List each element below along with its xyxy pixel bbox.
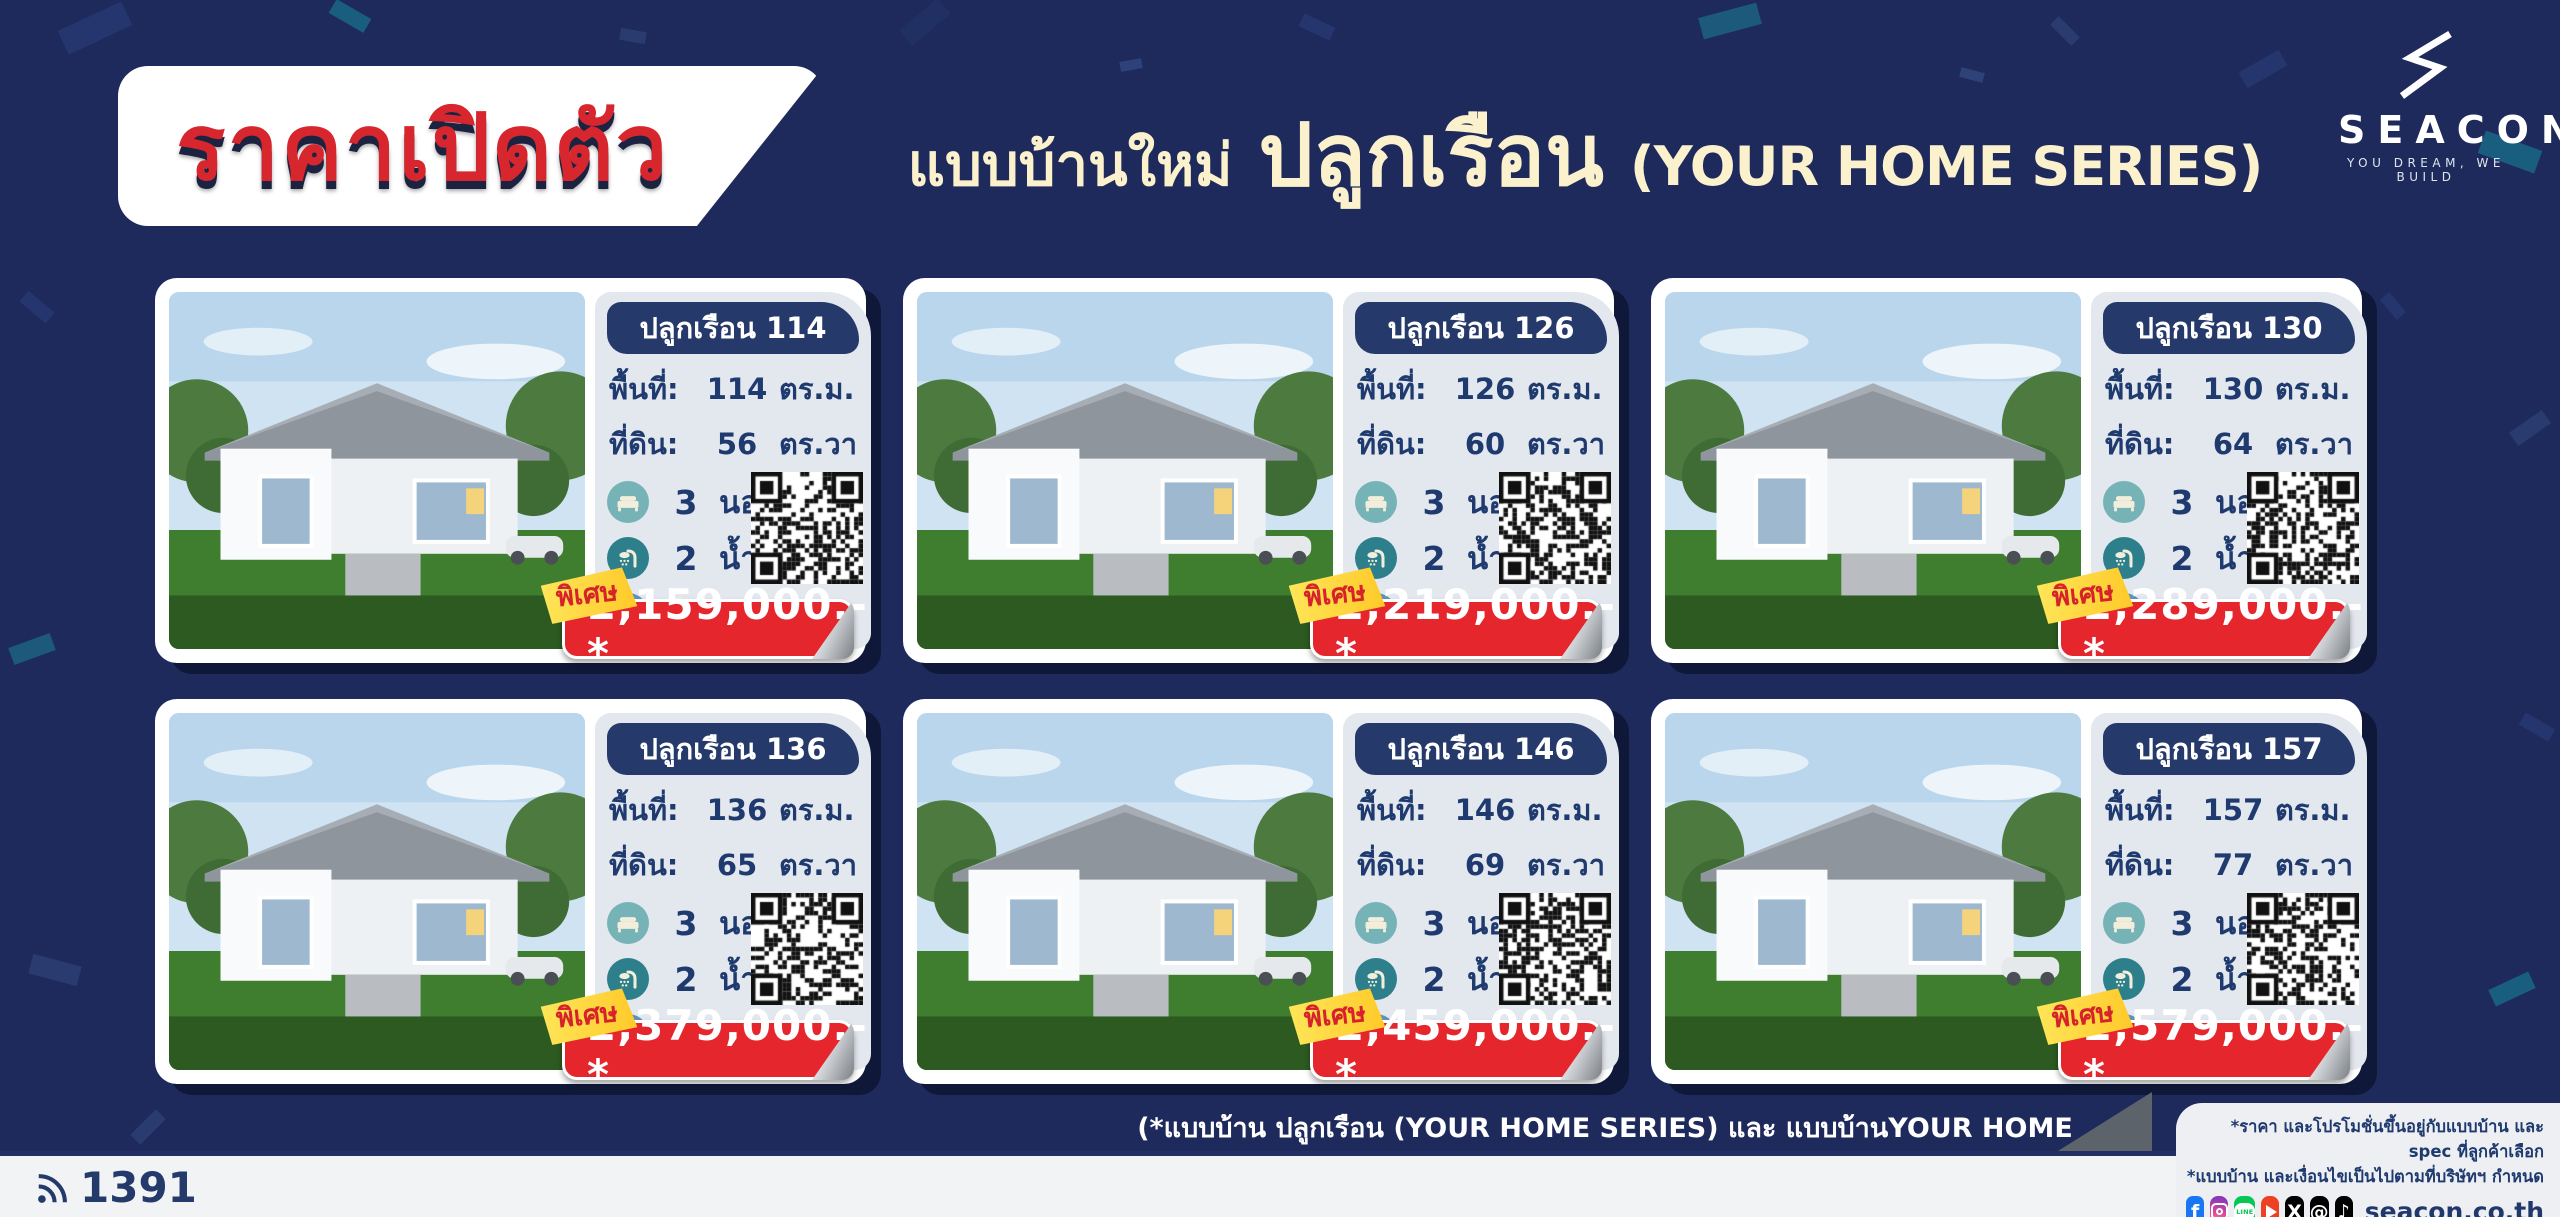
house-model-name: ปลูกเรือน 136 [639, 726, 826, 772]
hotline: 1391 [34, 1163, 197, 1212]
land-value: 60 [1453, 427, 1517, 461]
confetti-decoration [2239, 50, 2288, 89]
bedrooms-count: 3 [1413, 483, 1455, 522]
price-ribbon: พิเศษ ✦ 2,219,000.-* [1310, 599, 1602, 659]
brand-tagline: YOU DREAM, WE BUILD [2326, 156, 2526, 184]
x-icon[interactable]: X [2285, 1196, 2303, 1217]
house-model-badge: ปลูกเรือน 146 [1355, 723, 1607, 775]
area-row: พื้นที่: 157 ตร.ม. [2101, 787, 2357, 833]
page-title: แบบบ้านใหม่ ปลูกเรือน (YOUR HOME SERIES) [840, 86, 2330, 226]
confetti-decoration [1299, 13, 1336, 40]
area-label: พื้นที่: [1357, 787, 1443, 833]
house-model-badge: ปลูกเรือน 114 [607, 302, 859, 354]
promo-poster: ราคาเปิดตัว แบบบ้านใหม่ ปลูกเรือน (YOUR … [0, 0, 2560, 1217]
facebook-icon[interactable]: f [2186, 1196, 2204, 1217]
house-card: ปลูกเรือน 114 พื้นที่: 114 ตร.ม. ที่ดิน:… [155, 278, 866, 663]
area-value: 126 [1453, 372, 1517, 406]
land-value: 56 [705, 427, 769, 461]
house-card: ปลูกเรือน 130 พื้นที่: 130 ตร.ม. ที่ดิน:… [1651, 278, 2362, 663]
area-row: พื้นที่: 146 ตร.ม. [1353, 787, 1609, 833]
area-label: พื้นที่: [2105, 366, 2191, 412]
area-label: พื้นที่: [609, 787, 695, 833]
bed-icon [1355, 481, 1397, 523]
area-unit: ตร.ม. [2275, 366, 2353, 412]
confetti-decoration [619, 28, 647, 44]
website-link[interactable]: seacon.co.th [2365, 1197, 2544, 1217]
land-row: ที่ดิน: 64 ตร.วา [2101, 421, 2357, 467]
qr-code [1499, 472, 1611, 584]
seacon-logo: SEACONⒽ YOU DREAM, WE BUILD [2326, 28, 2526, 184]
cards-grid: ปลูกเรือน 114 พื้นที่: 114 ตร.ม. ที่ดิน:… [155, 278, 2362, 1084]
bed-icon [607, 902, 649, 944]
land-unit: ตร.วา [779, 842, 857, 888]
land-label: ที่ดิน: [609, 421, 695, 467]
land-row: ที่ดิน: 56 ตร.วา [605, 421, 861, 467]
area-unit: ตร.ม. [779, 787, 857, 833]
hotline-number: 1391 [80, 1163, 197, 1212]
house-model-name: ปลูกเรือน 114 [639, 305, 826, 351]
area-unit: ตร.ม. [2275, 787, 2353, 833]
land-value: 77 [2201, 848, 2265, 882]
house-card: ปลูกเรือน 157 พื้นที่: 157 ตร.ม. ที่ดิน:… [1651, 699, 2362, 1084]
house-card: ปลูกเรือน 146 พื้นที่: 146 ตร.ม. ที่ดิน:… [903, 699, 1614, 1084]
price-ribbon: พิเศษ ✦ 2,579,000.-* [2058, 1020, 2350, 1080]
tiktok-icon[interactable]: ♪ [2335, 1196, 2353, 1217]
line-icon[interactable]: LINE [2234, 1196, 2255, 1217]
instagram-icon[interactable] [2210, 1196, 2228, 1217]
bathrooms-count: 2 [2161, 539, 2203, 578]
house-illustration [169, 713, 585, 1070]
area-row: พื้นที่: 130 ตร.ม. [2101, 366, 2357, 412]
price-ribbon: พิเศษ ✦ 2,159,000.-* [562, 599, 854, 659]
house-model-name: ปลูกเรือน 146 [1387, 726, 1574, 772]
house-illustration [917, 713, 1333, 1070]
land-row: ที่ดิน: 77 ตร.วา [2101, 842, 2357, 888]
fine-print-line-2: *แบบบ้าน และเงื่อนไขเป็นไปตามที่บริษัทฯ … [2186, 1165, 2544, 1190]
price-ribbon: พิเศษ ✦ 2,379,000.-* [562, 1020, 854, 1080]
land-row: ที่ดิน: 65 ตร.วา [605, 842, 861, 888]
footer-right-panel: *ราคา และโปรโมชั่นขึ้นอยู่กับแบบบ้าน และ… [2176, 1103, 2560, 1217]
area-label: พื้นที่: [609, 366, 695, 412]
qr-code [2247, 472, 2359, 584]
fine-print-line-1: *ราคา และโปรโมชั่นขึ้นอยู่กับแบบบ้าน และ… [2186, 1115, 2544, 1165]
area-value: 146 [1453, 793, 1517, 827]
bathrooms-count: 2 [1413, 539, 1455, 578]
confetti-decoration [1959, 67, 1985, 83]
youtube-play-glyph [2266, 1205, 2277, 1217]
confetti-decoration [28, 954, 81, 986]
bedrooms-count: 3 [2161, 904, 2203, 943]
title-main: ปลูกเรือน [1259, 86, 1604, 223]
house-illustration [1665, 713, 2081, 1070]
house-illustration [169, 292, 585, 649]
area-value: 130 [2201, 372, 2265, 406]
bathrooms-count: 2 [1413, 960, 1455, 999]
confetti-decoration [130, 1109, 165, 1144]
land-unit: ตร.วา [1527, 421, 1605, 467]
bedrooms-count: 3 [2161, 483, 2203, 522]
qr-code [751, 893, 863, 1005]
seacon-s-icon [2394, 28, 2458, 102]
house-photo [1665, 713, 2081, 1070]
land-label: ที่ดิน: [1357, 842, 1443, 888]
area-value: 157 [2201, 793, 2265, 827]
house-model-name: ปลูกเรือน 130 [2135, 305, 2322, 351]
threads-icon[interactable]: @ [2310, 1196, 2329, 1217]
area-value: 136 [705, 793, 769, 827]
confetti-decoration [2519, 712, 2555, 741]
house-photo [917, 713, 1333, 1070]
bed-icon [2103, 902, 2145, 944]
bed-icon [607, 481, 649, 523]
house-photo [1665, 292, 2081, 649]
house-model-badge: ปลูกเรือน 136 [607, 723, 859, 775]
youtube-icon[interactable] [2261, 1196, 2279, 1217]
confetti-decoration [19, 291, 54, 324]
land-unit: ตร.วา [2275, 421, 2353, 467]
land-label: ที่ดิน: [609, 842, 695, 888]
confetti-decoration [1698, 3, 1762, 40]
area-label: พื้นที่: [2105, 787, 2191, 833]
land-unit: ตร.วา [779, 421, 857, 467]
bathrooms-count: 2 [665, 539, 707, 578]
signal-icon [34, 1169, 72, 1207]
area-row: พื้นที่: 114 ตร.ม. [605, 366, 861, 412]
land-label: ที่ดิน: [2105, 421, 2191, 467]
area-row: พื้นที่: 136 ตร.ม. [605, 787, 861, 833]
area-value: 114 [705, 372, 769, 406]
confetti-decoration [2488, 972, 2535, 1007]
bedrooms-count: 3 [665, 904, 707, 943]
special-label: พิเศษ [554, 576, 619, 613]
line-bubble-glyph: LINE [2234, 1203, 2255, 1217]
area-row: พื้นที่: 126 ตร.ม. [1353, 366, 1609, 412]
bed-icon [2103, 481, 2145, 523]
land-label: ที่ดิน: [1357, 421, 1443, 467]
confetti-decoration [58, 1, 132, 54]
house-photo [917, 292, 1333, 649]
area-unit: ตร.ม. [1527, 366, 1605, 412]
land-unit: ตร.วา [1527, 842, 1605, 888]
house-model-badge: ปลูกเรือน 157 [2103, 723, 2355, 775]
confetti-decoration [2380, 292, 2406, 320]
confetti-decoration [899, 0, 950, 46]
house-illustration [1665, 292, 2081, 649]
house-illustration [917, 292, 1333, 649]
house-model-name: ปลูกเรือน 157 [2135, 726, 2322, 772]
land-label: ที่ดิน: [2105, 842, 2191, 888]
confetti-decoration [8, 633, 56, 665]
bed-icon [1355, 902, 1397, 944]
land-value: 69 [1453, 848, 1517, 882]
special-label: พิเศษ [1302, 997, 1367, 1034]
confetti-decoration [2050, 16, 2080, 46]
title-suffix: (YOUR HOME SERIES) [1630, 135, 2262, 198]
land-value: 65 [705, 848, 769, 882]
bathrooms-count: 2 [2161, 960, 2203, 999]
qr-code [2247, 893, 2359, 1005]
land-row: ที่ดิน: 60 ตร.วา [1353, 421, 1609, 467]
special-label: พิเศษ [1302, 576, 1367, 613]
house-card: ปลูกเรือน 136 พื้นที่: 136 ตร.ม. ที่ดิน:… [155, 699, 866, 1084]
land-row: ที่ดิน: 69 ตร.วา [1353, 842, 1609, 888]
brand-name: SEACON [2326, 108, 2560, 152]
land-value: 64 [2201, 427, 2265, 461]
special-label: พิเศษ [2050, 997, 2115, 1034]
social-row: f LINE X @ ♪ seacon.co.th [2186, 1196, 2544, 1217]
house-photo [169, 713, 585, 1070]
area-unit: ตร.ม. [1527, 787, 1605, 833]
bathrooms-count: 2 [665, 960, 707, 999]
house-card: ปลูกเรือน 126 พื้นที่: 126 ตร.ม. ที่ดิน:… [903, 278, 1614, 663]
area-unit: ตร.ม. [779, 366, 857, 412]
house-model-badge: ปลูกเรือน 126 [1355, 302, 1607, 354]
price-ribbon: พิเศษ ✦ 2,289,000.-* [2058, 599, 2350, 659]
instagram-camera-glyph [2211, 1203, 2228, 1217]
launch-price-banner: ราคาเปิดตัว [118, 66, 824, 226]
land-unit: ตร.วา [2275, 842, 2353, 888]
confetti-decoration [329, 0, 372, 33]
title-prefix: แบบบ้านใหม่ [908, 118, 1233, 211]
qr-code [751, 472, 863, 584]
house-model-badge: ปลูกเรือน 130 [2103, 302, 2355, 354]
house-model-name: ปลูกเรือน 126 [1387, 305, 1574, 351]
launch-price-text: ราคาเปิดตัว [176, 73, 669, 220]
price-ribbon: พิเศษ ✦ 2,459,000.-* [1310, 1020, 1602, 1080]
special-label: พิเศษ [554, 997, 619, 1034]
area-label: พื้นที่: [1357, 366, 1443, 412]
confetti-decoration [1119, 58, 1142, 72]
special-label: พิเศษ [2050, 576, 2115, 613]
qr-code [1499, 893, 1611, 1005]
confetti-decoration [2509, 410, 2551, 446]
bedrooms-count: 3 [1413, 904, 1455, 943]
bedrooms-count: 3 [665, 483, 707, 522]
house-photo [169, 292, 585, 649]
